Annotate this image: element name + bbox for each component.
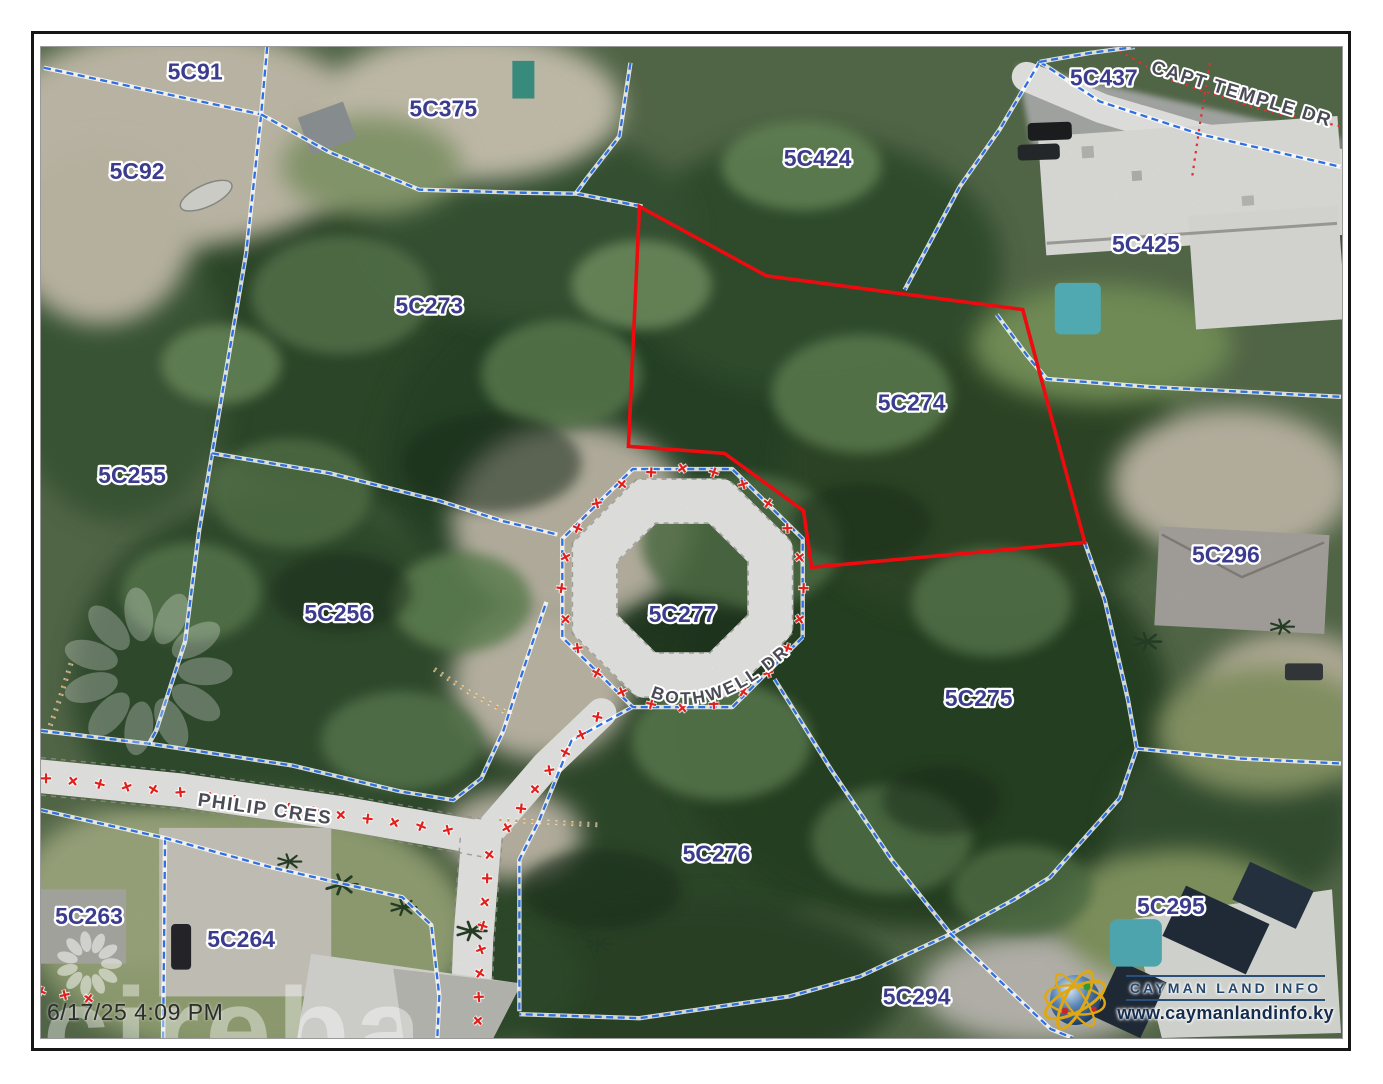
- parcel-label-5C425: 5C425: [1112, 231, 1180, 257]
- parcel-label-5C437: 5C437: [1070, 65, 1138, 91]
- parcel-label-5C255: 5C255: [98, 462, 166, 488]
- page-root: { "page": { "timestamp": "6/17/25 4:09 P…: [0, 0, 1383, 1084]
- parcel-label-5C275: 5C275: [945, 685, 1013, 711]
- parcel-label-5C274: 5C274: [878, 390, 946, 416]
- cayman-land-info-globe-icon: [1037, 960, 1115, 1038]
- parcel-label-5C296: 5C296: [1192, 541, 1260, 567]
- parcel-label-5C294: 5C294: [883, 983, 951, 1009]
- parcel-label-5C273: 5C273: [395, 293, 463, 319]
- parcel-label-5C92: 5C92: [110, 158, 165, 184]
- parcel-label-5C91: 5C91: [168, 59, 223, 85]
- parcel-label-5C276: 5C276: [683, 841, 751, 867]
- parcel-label-5C256: 5C256: [304, 600, 372, 626]
- parcel-label-5C295: 5C295: [1137, 893, 1205, 919]
- parcel-label-5C375: 5C375: [409, 95, 477, 121]
- map-canvas: cireba5C915C3755C925C4245C4375C4255C2735…: [41, 47, 1342, 1038]
- parcel-label-5C264: 5C264: [207, 926, 275, 952]
- cayman-land-info-logo: CAYMAN LAND INFO www.caymanlandinfo.ky: [1037, 960, 1334, 1038]
- cayman-land-info-title: CAYMAN LAND INFO: [1126, 975, 1325, 1001]
- parcel-label-5C277: 5C277: [649, 601, 717, 627]
- map-frame: cireba5C915C3755C925C4245C4375C4255C2735…: [40, 46, 1343, 1039]
- timestamp: 6/17/25 4:09 PM: [47, 999, 223, 1026]
- cayman-land-info-url: www.caymanlandinfo.ky: [1117, 1003, 1334, 1024]
- parcel-label-5C263: 5C263: [55, 903, 123, 929]
- imagery-grain-texture: [41, 47, 1342, 1038]
- parcel-label-5C424: 5C424: [784, 145, 852, 171]
